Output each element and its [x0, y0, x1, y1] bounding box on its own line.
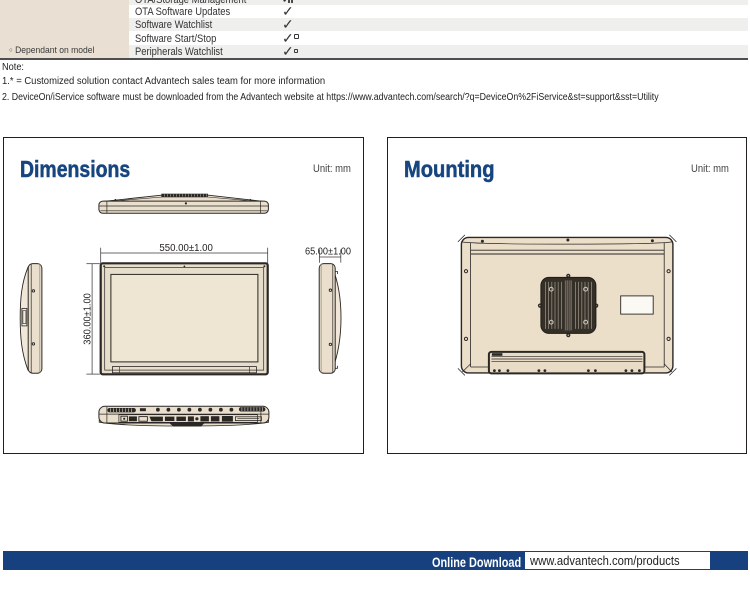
svg-text:550.00±1.00: 550.00±1.00 [159, 243, 213, 254]
svg-text:65.00±1.00: 65.00±1.00 [305, 246, 351, 257]
svg-text:360.00±1.00: 360.00±1.00 [83, 293, 94, 345]
